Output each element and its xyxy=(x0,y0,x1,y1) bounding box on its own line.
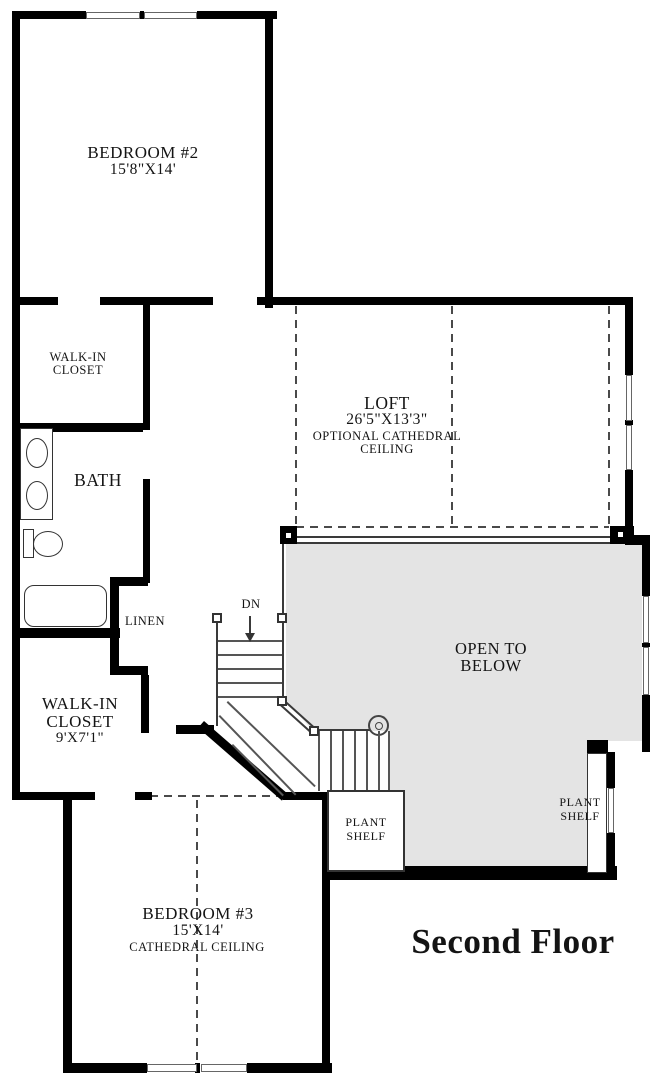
stair-tread xyxy=(378,731,380,791)
stair-rail-left xyxy=(216,618,218,726)
room-label-bedroom2: BEDROOM #2 xyxy=(87,144,198,161)
wall-bedroom3-bottom-b xyxy=(247,1063,332,1073)
railing-post-right-dot xyxy=(618,532,623,537)
wall-tub-bottom xyxy=(18,628,120,638)
room-label-walkin-closet-upper: CLOSET xyxy=(53,364,103,377)
stair-tread xyxy=(218,668,282,670)
loft-boundary-dashed-bottom xyxy=(296,526,609,528)
window xyxy=(201,1064,247,1072)
loft-boundary-dashed-left xyxy=(295,306,297,529)
window xyxy=(643,596,649,643)
wall-closet2-bottom xyxy=(12,792,95,800)
wall-loft-right-a xyxy=(625,297,633,375)
room-label-linen: LINEN xyxy=(125,615,165,628)
room-label-walkin-closet-lower: CLOSET xyxy=(46,713,113,730)
window xyxy=(86,12,140,19)
room-label-loft: LOFT xyxy=(364,395,410,413)
wall-step-right xyxy=(587,740,608,753)
wall-bedroom3-left xyxy=(63,792,72,1073)
label-plant-shelf-right: SHELF xyxy=(560,810,599,822)
wall-closet1-right xyxy=(143,297,150,430)
stair-tread xyxy=(218,696,282,698)
stair-tread xyxy=(218,682,282,684)
label-stairs-down: DN xyxy=(241,598,260,611)
window xyxy=(626,375,632,421)
newel-post xyxy=(277,696,287,706)
newel-post xyxy=(212,613,222,623)
railing-top-outer xyxy=(297,536,610,538)
wall-lower-right-a xyxy=(607,752,615,788)
wall-outer-left xyxy=(12,11,20,800)
window xyxy=(144,12,197,19)
wall-bath-right xyxy=(143,479,150,583)
window xyxy=(147,1064,197,1072)
sink-basin xyxy=(26,481,48,510)
wall-bedroom3-top-cap xyxy=(135,792,152,800)
floor-plan: BEDROOM #2 15'8"X14' WALK-IN CLOSET BATH… xyxy=(0,0,666,1080)
room-label-bath: BATH xyxy=(74,472,122,490)
room-note-bedroom3: CATHEDRAL CEILING xyxy=(129,941,264,954)
room-note-loft: OPTIONAL CATHEDRAL xyxy=(313,430,461,443)
wall-linen-bottom xyxy=(110,666,148,675)
label-plant-shelf-right: PLANT xyxy=(559,796,600,808)
room-dims-loft: 26'5"X13'3" xyxy=(346,412,427,428)
wall-bedroom2-right xyxy=(265,11,273,308)
wall-hall-left xyxy=(141,675,149,733)
room-dims-bedroom3: 15'X14' xyxy=(172,923,223,939)
sink-basin xyxy=(26,438,48,468)
wall-linen-left xyxy=(110,577,119,675)
window xyxy=(626,425,632,470)
railing-top-inner xyxy=(297,542,610,544)
stair-tread xyxy=(388,731,390,791)
room-label-bedroom3: BEDROOM #3 xyxy=(142,905,253,922)
room-note-loft: CEILING xyxy=(360,443,414,456)
stair-tread xyxy=(330,731,332,791)
wall-bedroom2-top-a xyxy=(12,11,86,19)
newel-post xyxy=(309,726,319,736)
down-arrow-head xyxy=(245,633,255,642)
label-plant-shelf-left: SHELF xyxy=(346,830,385,842)
window xyxy=(608,788,614,833)
newel-post xyxy=(277,613,287,623)
stair-tread xyxy=(218,654,282,656)
stair-tread xyxy=(366,731,368,791)
wall-outer-right-a xyxy=(642,543,650,596)
railing-volute-center xyxy=(375,722,383,730)
wall-mid-a xyxy=(12,297,58,305)
stair-tread xyxy=(318,731,320,791)
wall-bedroom3-bottom-a xyxy=(63,1063,147,1073)
wall-loft-top xyxy=(257,297,633,305)
railing-post-left-dot xyxy=(286,533,291,538)
label-plant-shelf-left: PLANT xyxy=(345,816,386,828)
bathtub xyxy=(24,585,107,627)
room-dims-walkin-closet-lower: 9'X7'1" xyxy=(56,731,104,746)
stair-winder-tread xyxy=(232,744,284,796)
room-label-walkin-closet-upper: WALK-IN xyxy=(50,351,107,364)
toilet-bowl xyxy=(33,531,63,557)
wall-mid-b xyxy=(100,297,213,305)
page-title: Second Floor xyxy=(411,924,614,959)
down-arrow-shaft xyxy=(249,616,251,634)
room-dims-bedroom2: 15'8"X14' xyxy=(110,162,176,178)
window xyxy=(643,647,649,695)
room-label-walkin-closet-lower: WALK-IN xyxy=(42,695,118,712)
bedroom3-top-dashed xyxy=(150,795,283,797)
loft-ridge-dashed xyxy=(451,306,453,529)
stair-tread xyxy=(354,731,356,791)
label-open-to-below: BELOW xyxy=(460,658,521,675)
loft-boundary-dashed-right xyxy=(608,306,610,529)
stair-tread xyxy=(342,731,344,791)
wall-outer-right-b xyxy=(642,695,650,752)
